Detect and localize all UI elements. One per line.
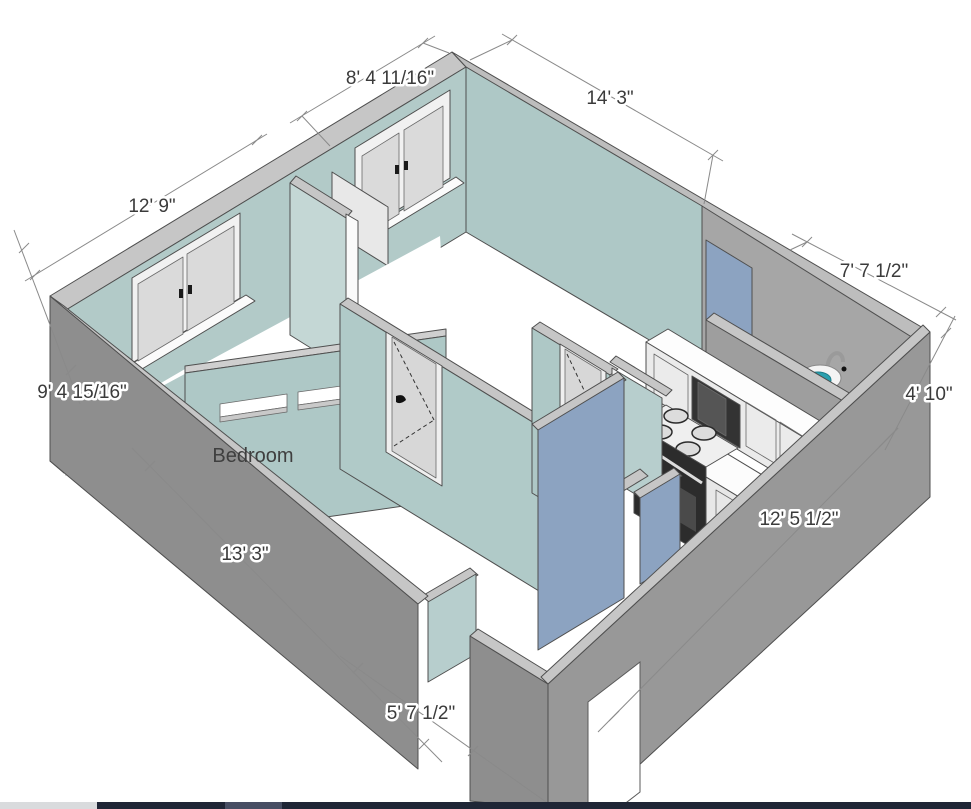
window-handle-icon <box>179 289 183 298</box>
taskbar-left-segment[interactable] <box>0 802 97 809</box>
dim-label: 8' 4 11/16" <box>346 68 434 89</box>
entry-return-wall <box>470 629 556 809</box>
floorplan-3d-scene: 8' 4 11/16" 14' 3" 12' 9" 9' 4 15/16" <box>0 0 971 809</box>
dim-label: 14' 3" <box>586 88 633 109</box>
dim-label: 12' 5 1/2" <box>759 509 838 530</box>
burner-icon <box>664 409 688 423</box>
dim-label: 13' 3" <box>221 544 268 565</box>
taskbar-active-app-segment[interactable] <box>225 802 282 809</box>
room-label-bedroom: Bedroom <box>212 445 293 467</box>
window-handle-icon <box>188 285 192 294</box>
dim-label: 7' 7 1/2" <box>840 261 908 282</box>
floorplan-3d-viewport[interactable]: 8' 4 11/16" 14' 3" 12' 9" 9' 4 15/16" <box>0 0 971 809</box>
window-handle-icon <box>395 165 399 174</box>
dim-label: 9' 4 15/16" <box>37 382 127 403</box>
taskbar-strip[interactable] <box>0 802 971 809</box>
dim-label: 5' 7 1/2" <box>387 703 455 724</box>
dim-label: 12' 9" <box>128 196 175 217</box>
burner-icon <box>692 426 716 440</box>
dim-label: 4' 10" <box>905 384 952 405</box>
window-handle-icon <box>404 161 408 170</box>
